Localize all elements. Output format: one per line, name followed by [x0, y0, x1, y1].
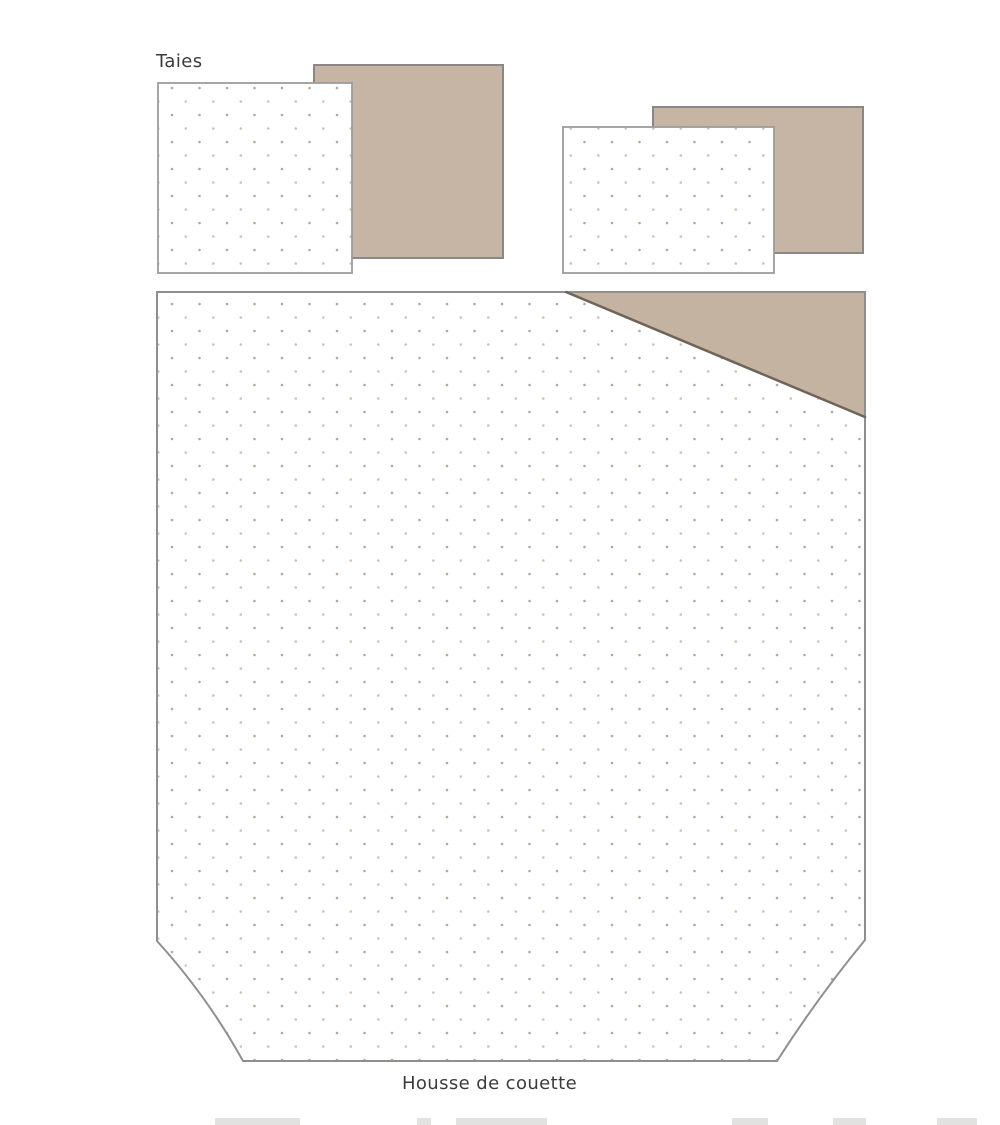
pillowcase-rect — [563, 127, 774, 273]
duvet-cover-shape — [157, 292, 865, 1061]
cropped-content-fragments — [215, 1118, 977, 1125]
bedding-set-diagram: Taies Housse de couette — [0, 0, 1000, 1125]
duvet-cover-label: Housse de couette — [357, 1073, 622, 1094]
pillowcases-label: Taies — [156, 51, 203, 72]
bedding-shapes — [0, 0, 1000, 1125]
pillowcase-square — [158, 83, 352, 273]
